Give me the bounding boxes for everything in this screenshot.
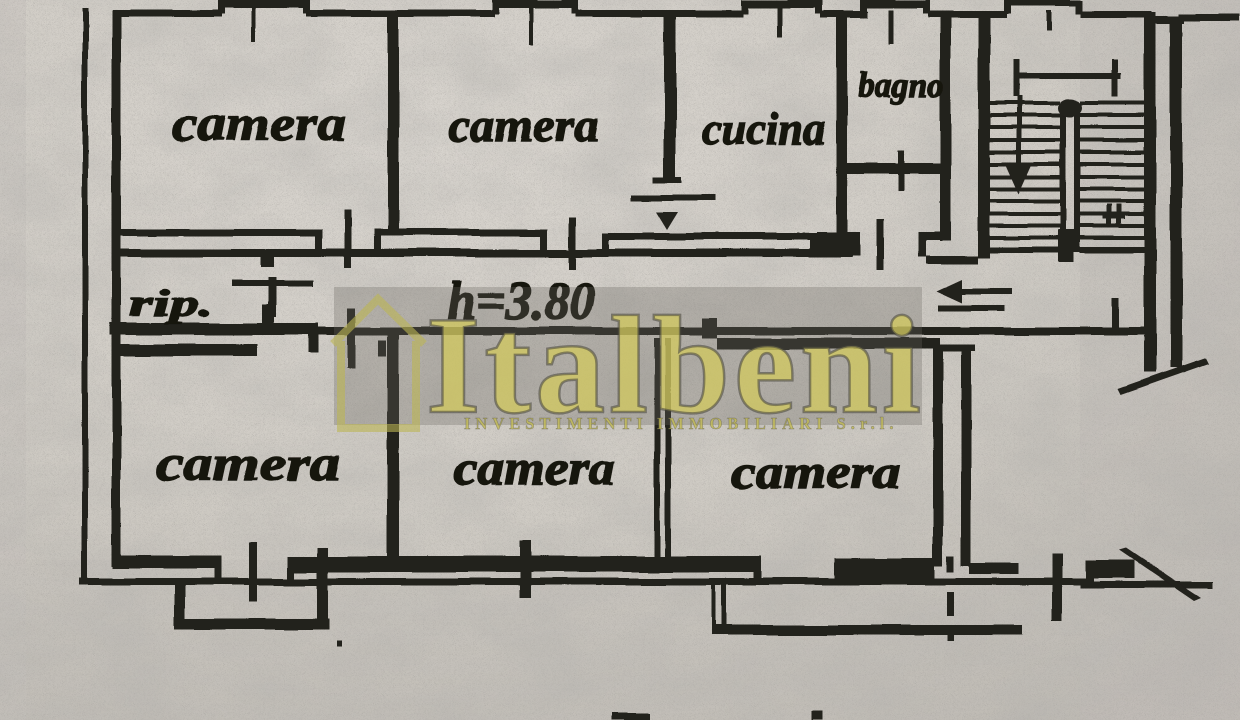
- svg-text:camera: camera: [731, 446, 900, 499]
- svg-text:camera: camera: [454, 442, 615, 495]
- svg-text:rip.: rip.: [129, 283, 213, 325]
- svg-text:camera: camera: [156, 435, 340, 491]
- svg-text:INVESTIMENTI IMMOBILIARI S.r.l: INVESTIMENTI IMMOBILIARI S.r.l.: [464, 414, 899, 433]
- svg-text:bagno: bagno: [858, 65, 944, 105]
- svg-text:camera: camera: [448, 100, 599, 152]
- svg-text:camera: camera: [172, 95, 346, 151]
- svg-text:cucina: cucina: [702, 104, 825, 154]
